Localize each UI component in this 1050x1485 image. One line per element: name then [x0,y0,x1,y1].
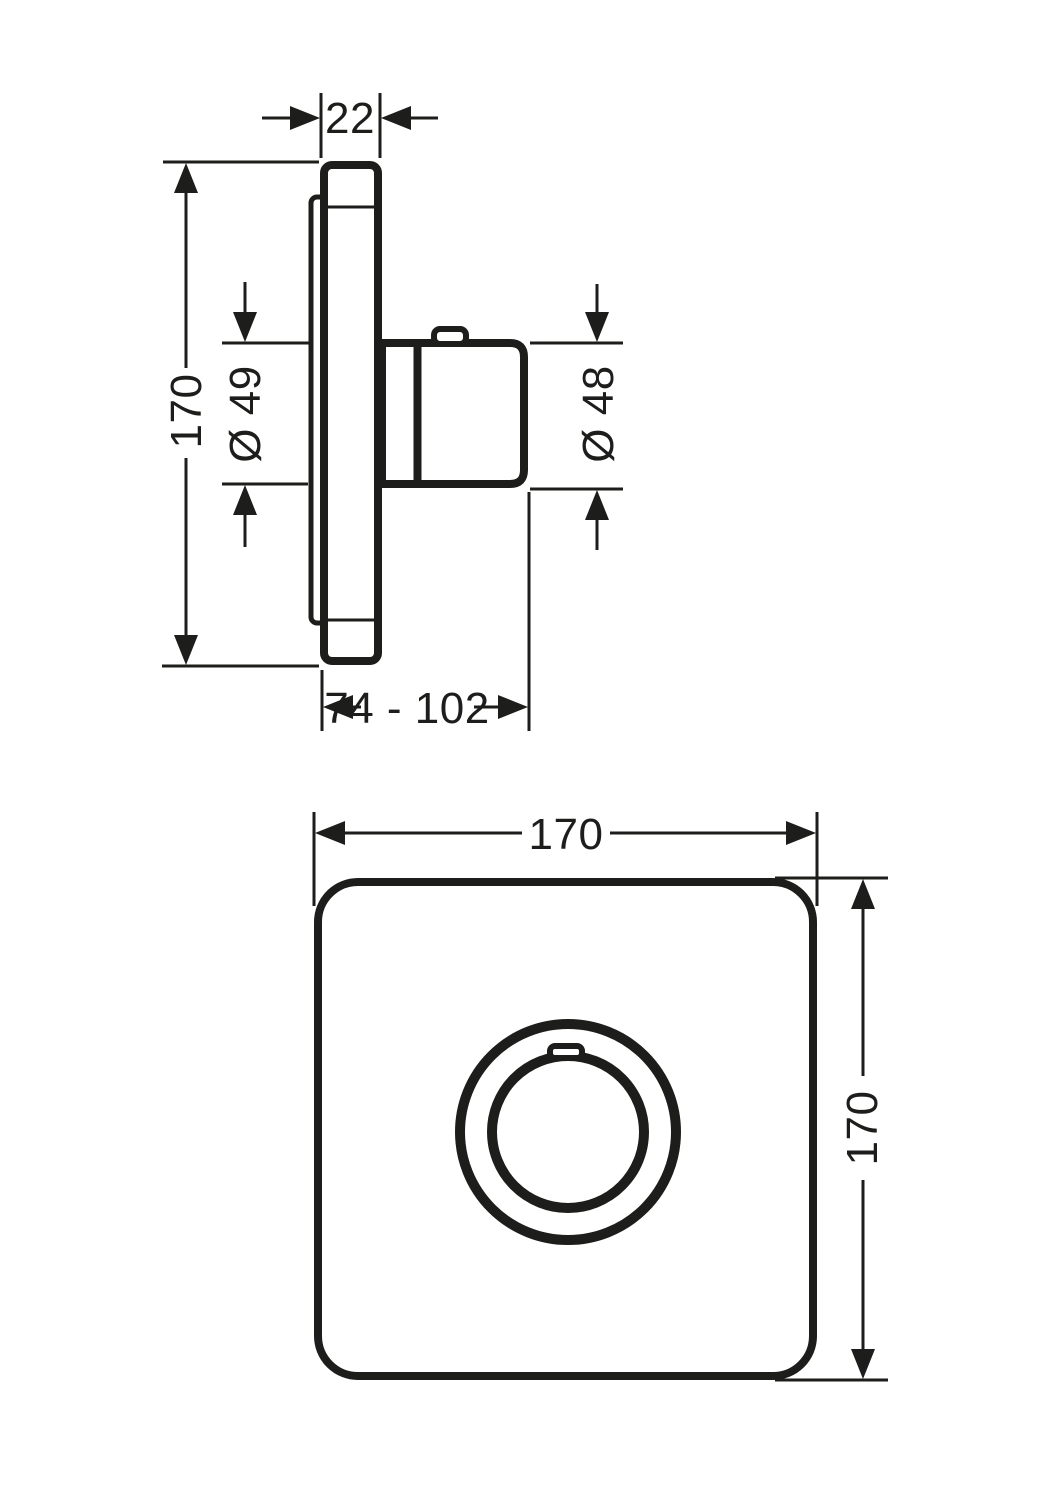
arrowhead-down-icon [174,635,198,665]
arrowhead-up-icon [233,485,257,515]
dim-label-handle-diameter: Ø 48 [574,365,623,462]
arrowhead-right-icon [290,106,320,130]
arrowhead-down-icon [585,312,609,342]
dim-label-plate-height-side: 170 [162,374,211,449]
safety-stop-tab-front [550,1046,582,1058]
arrowhead-right-icon [786,821,816,845]
arrowhead-up-icon [585,490,609,520]
dimensional-drawing: 22 170 Ø 49 [0,0,1050,1485]
safety-stop-tab-side [434,329,466,344]
dim-label-plate-thickness: 22 [325,94,375,143]
dim-sleeve-diameter: Ø 49 [221,282,310,547]
dim-plate-thickness: 22 [262,93,438,158]
dim-label-sleeve-diameter: Ø 49 [221,365,270,462]
arrowhead-left-icon [381,106,411,130]
dim-label-depth-range: 74 - 102 [324,684,489,733]
arrowhead-up-icon [174,163,198,193]
handle-side [382,343,524,484]
dim-handle-diameter: Ø 48 [530,284,623,550]
front-view: 170 170 [314,810,888,1380]
dim-label-plate-height-front: 170 [838,1091,887,1166]
technical-drawing-page: 22 170 Ø 49 [0,0,1050,1485]
side-view: 22 170 Ø 49 [162,93,623,733]
dim-label-plate-width-front: 170 [529,810,604,859]
arrowhead-down-icon [233,312,257,342]
arrowhead-down-icon [851,1349,875,1379]
arrowhead-up-icon [851,879,875,909]
escutcheon-plate-side [324,165,378,661]
handle-inner-circle [492,1056,644,1208]
arrowhead-right-icon [498,695,528,719]
arrowhead-left-icon [315,821,345,845]
